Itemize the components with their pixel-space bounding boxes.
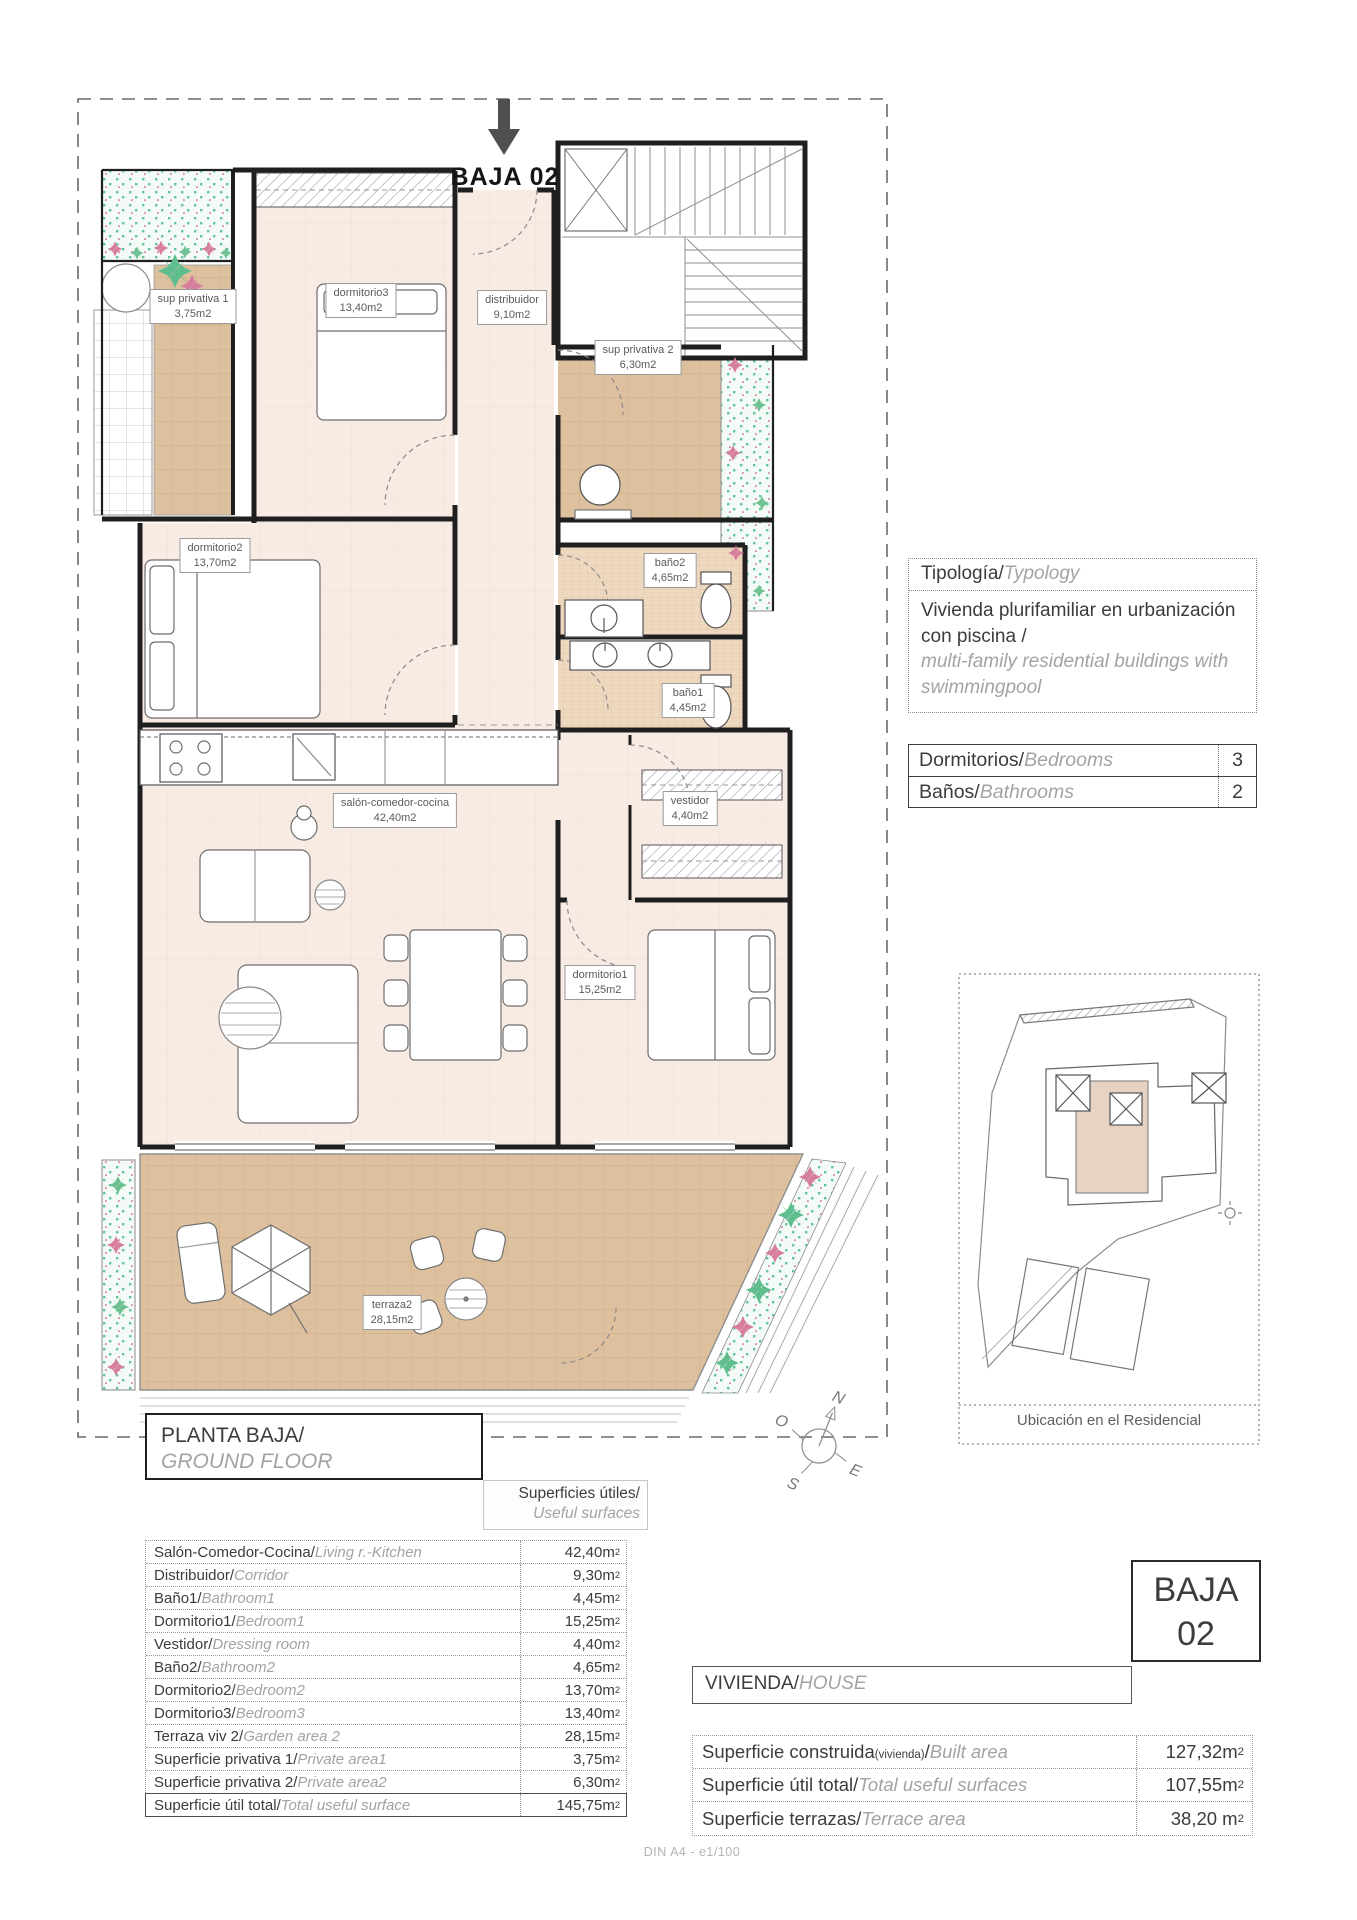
- useful-surfaces-table: Salón-Comedor-Cocina/Living r.-Kitchen 4…: [145, 1540, 627, 1817]
- compass-icon: N E S O: [762, 1386, 877, 1506]
- site-plan-caption: Ubicación en el Residencial: [958, 1412, 1260, 1429]
- table-row: Superficie privativa 2/Private area2 6,3…: [146, 1771, 626, 1794]
- room-label: salón-comedor-cocina42,40m2: [333, 793, 457, 828]
- table-row: Superficie útil total/Total useful surfa…: [693, 1769, 1252, 1802]
- typology-description: Vivienda plurifamiliar en urbanización c…: [909, 591, 1256, 712]
- typology-header: Tipología/Typology: [909, 559, 1256, 591]
- table-row: Superficie construida(vivienda)/Built ar…: [693, 1736, 1252, 1769]
- bathrooms-count-value: 2: [1218, 777, 1256, 807]
- room-label: sup privativa 26,30m2: [595, 340, 682, 375]
- table-row: Superficie terrazas/Terrace area 38,20 m…: [693, 1802, 1252, 1835]
- table-row: Distribuidor/Corridor 9,30m2: [146, 1564, 626, 1587]
- unit-badge: BAJA 02: [1131, 1560, 1261, 1662]
- table-row: Dormitorio2/Bedroom2 13,70m2: [146, 1679, 626, 1702]
- table-row: Superficie privativa 1/Private area1 3,7…: [146, 1748, 626, 1771]
- table-row: Baño1/Bathroom1 4,45m2: [146, 1587, 626, 1610]
- svg-text:E: E: [847, 1461, 864, 1481]
- rooms-count-table: Dormitorios/Bedrooms 3 Baños/Bathrooms 2: [908, 744, 1257, 808]
- bedrooms-count-row: Dormitorios/Bedrooms 3: [909, 745, 1256, 776]
- bathrooms-count-row: Baños/Bathrooms 2: [909, 776, 1256, 807]
- room-label: baño14,45m2: [662, 683, 715, 718]
- table-row: Vestidor/Dressing room 4,40m2: [146, 1633, 626, 1656]
- room-label: dormitorio115,25m2: [564, 965, 635, 1000]
- room-label: terraza228,15m2: [363, 1295, 422, 1330]
- house-section-header: VIVIENDA/HOUSE: [692, 1666, 1132, 1704]
- svg-text:O: O: [772, 1411, 790, 1431]
- plan-reference-title: BAJA 02: [451, 163, 560, 192]
- table-row: Salón-Comedor-Cocina/Living r.-Kitchen 4…: [146, 1541, 626, 1564]
- table-row: Dormitorio1/Bedroom1 15,25m2: [146, 1610, 626, 1633]
- site-plan-drawing: [958, 973, 1260, 1445]
- typology-box: Tipología/Typology Vivienda plurifamilia…: [908, 558, 1257, 713]
- room-label: vestidor4,40m2: [663, 791, 718, 826]
- table-row: Dormitorio3/Bedroom3 13,40m2: [146, 1702, 626, 1725]
- svg-text:N: N: [830, 1388, 847, 1408]
- unit-location-arrow-icon: [488, 99, 520, 157]
- table-row-total: Superficie útil total/Total useful surfa…: [145, 1793, 627, 1817]
- house-surfaces-table: Superficie construida(vivienda)/Built ar…: [692, 1735, 1253, 1836]
- table-row: Terraza viv 2/Garden area 2 28,15m2: [146, 1725, 626, 1748]
- room-label: baño24,65m2: [644, 553, 697, 588]
- bedrooms-count-value: 3: [1218, 745, 1256, 776]
- sheet-scale-note: DIN A4 - e1/100: [592, 1845, 792, 1859]
- table-row: Baño2/Bathroom2 4,65m2: [146, 1656, 626, 1679]
- useful-surfaces-header: Superficies útiles/ Useful surfaces: [483, 1480, 648, 1530]
- floor-title-box: PLANTA BAJA/ GROUND FLOOR: [145, 1413, 483, 1480]
- room-label: sup privativa 13,75m2: [150, 289, 237, 324]
- room-label: dormitorio213,70m2: [179, 538, 250, 573]
- svg-text:S: S: [785, 1475, 802, 1495]
- room-label: distribuidor9,10m2: [477, 290, 547, 325]
- room-label: dormitorio313,40m2: [325, 283, 396, 318]
